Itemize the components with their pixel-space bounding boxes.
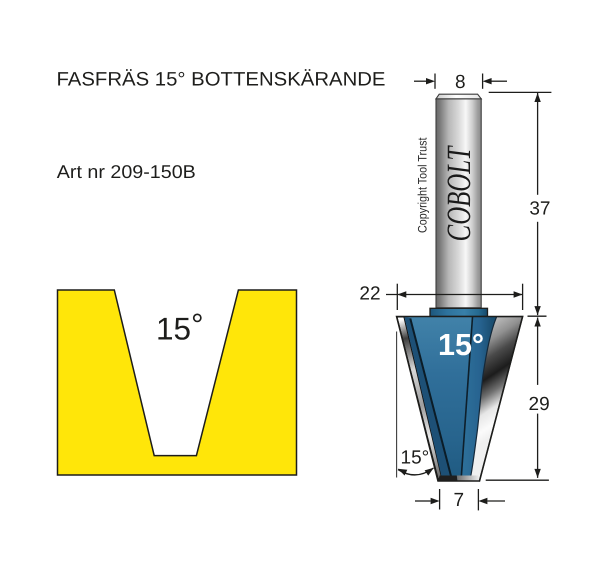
svg-text:22: 22 (359, 284, 380, 305)
svg-text:15°: 15° (156, 307, 204, 347)
svg-text:Copyright Tool Trust: Copyright Tool Trust (415, 137, 429, 233)
svg-text:15°: 15° (401, 448, 430, 469)
svg-text:8: 8 (455, 72, 466, 93)
svg-text:7: 7 (454, 490, 465, 511)
svg-text:Art nr 209-150B: Art nr 209-150B (57, 161, 196, 182)
svg-text:37: 37 (529, 198, 550, 219)
svg-text:COBOLT: COBOLT (441, 145, 478, 241)
svg-text:15°: 15° (438, 328, 484, 362)
svg-text:FASFRÄS 15° BOTTENSKÄRANDE: FASFRÄS 15° BOTTENSKÄRANDE (57, 69, 386, 91)
svg-text:29: 29 (529, 394, 550, 415)
